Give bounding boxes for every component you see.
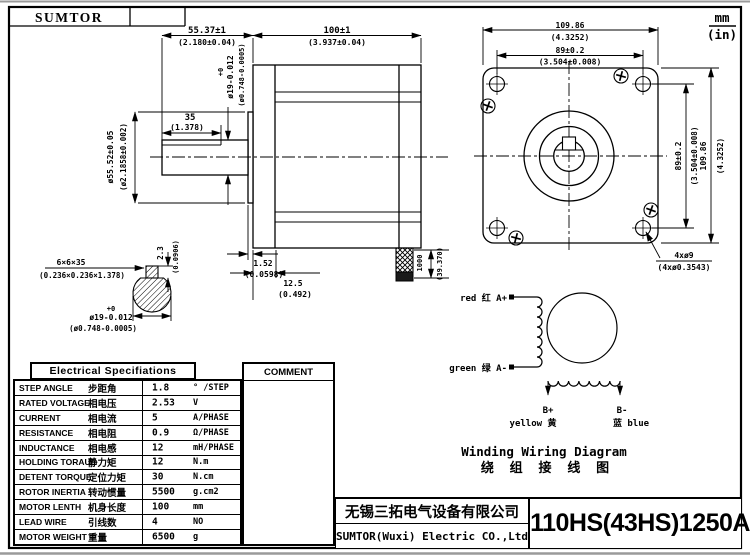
dim-mounting-holes-mm: 4xø9: [674, 251, 693, 260]
spec-unit: ° /STEP: [193, 383, 229, 393]
spec-value: 2.53: [152, 397, 175, 408]
winding-wiring-diagram: [509, 293, 620, 395]
brand-logo: SUMTOR: [35, 10, 103, 25]
dim-boss-height-mm: 1.52: [253, 259, 272, 268]
lead-b-plus-color: yellow 黄: [510, 417, 557, 429]
spec-value: 0.9: [152, 427, 169, 438]
spec-name-en: RATED VOLTAGE: [19, 398, 90, 408]
cable-end: [396, 272, 413, 281]
dim-body-length-mm: 100±1: [323, 26, 350, 36]
spec-unit: mm: [193, 502, 203, 512]
key-section: [146, 266, 158, 278]
spec-name-en: DETENT TORQUE: [19, 472, 92, 482]
spec-name-cn: 相电压: [88, 396, 117, 410]
dim-flange-width-in: (4.3252): [551, 33, 590, 42]
table-row: STEP ANGLE步距角1.8° /STEP: [15, 381, 240, 396]
dim-detail-tol-plus: +0: [107, 305, 115, 313]
spec-value: 5: [152, 412, 158, 423]
lead-cable: [396, 248, 413, 272]
company-name-en: SUMTOR(Wuxi) Electric CO.,Ltd: [336, 524, 528, 548]
spec-unit: g.cm2: [193, 487, 219, 497]
dim-shaft-to-face-in: (2.180±0.04): [178, 38, 236, 47]
lead-a-plus-label: red 红 A+: [460, 292, 508, 304]
spec-value: 4: [152, 517, 158, 528]
spec-name-cn: 静力矩: [88, 455, 117, 469]
dim-boss-dia-in: (ø2.1858±0.002): [119, 123, 128, 191]
shaft-section: [133, 278, 171, 312]
front-boss: [248, 112, 253, 203]
dim-key-mm: 6×6×35: [57, 258, 86, 267]
units-in-label: (in): [707, 27, 737, 42]
spec-name-en: CURRENT: [19, 413, 61, 423]
spec-name-cn: 机身长度: [88, 500, 126, 514]
table-row: ROTOR INERTIA转动惯量5500g.cm2: [15, 485, 240, 500]
spec-name-en: ROTOR INERTIA: [19, 487, 86, 497]
spec-name-en: INDUCTANCE: [19, 443, 75, 453]
table-row: RESISTANCE相电阻0.9Ω/PHASE: [15, 426, 240, 441]
spec-value: 5500: [152, 487, 175, 498]
terminal-dot: [509, 365, 514, 370]
dim-mounting-holes-in: (4xø0.3543): [658, 263, 711, 272]
dim-hole-span-h-mm: 89±0.2: [556, 46, 585, 55]
spec-name-cn: 定位力矩: [88, 470, 126, 484]
table-row: LEAD WIRE引线数4NO: [15, 515, 240, 530]
spec-name-en: HOLDING TORAUE: [19, 457, 96, 467]
phase-a-coil: [537, 297, 542, 367]
dim-shaft-to-face-mm: 55.37±1: [188, 26, 226, 36]
spec-value: 6500: [152, 532, 175, 543]
spec-name-cn: 重量: [88, 530, 107, 544]
lead-b-plus-label: B+: [543, 406, 554, 416]
spec-name-cn: 步距角: [88, 381, 117, 395]
dim-key-in: (0.236×0.236×1.378): [39, 271, 125, 280]
table-row: RATED VOLTAGE相电压2.53V: [15, 396, 240, 411]
spec-value: 12: [152, 457, 163, 468]
dim-front-step-mm: 12.5: [283, 279, 302, 288]
dim-shaft-dia-mm: ø19-0.012: [226, 55, 235, 99]
spec-unit: g: [193, 532, 198, 542]
spec-name-cn: 相电感: [88, 441, 117, 455]
dim-detail-dia-mm: ø19-0.012: [89, 313, 133, 322]
dim-key-height-mm: 2.3: [156, 246, 165, 260]
spec-name-en: RESISTANCE: [19, 428, 73, 438]
phase-b-coil: [548, 381, 620, 386]
dim-hole-span-h-in: (3.504±0.008): [539, 58, 602, 67]
units-mm-label: mm: [714, 10, 730, 25]
spec-value: 100: [152, 502, 169, 513]
spec-value: 1.8: [152, 382, 169, 393]
dim-hole-span-v-in: (3.504±0.008): [690, 127, 699, 186]
dim-flange-width-mm: 109.86: [556, 21, 585, 30]
spec-table: STEP ANGLE步距角1.8° /STEP RATED VOLTAGE相电压…: [13, 379, 242, 546]
spec-name-en: MOTOR WEIGHT: [19, 532, 87, 542]
dim-flange-height-in: (4.3252): [716, 138, 725, 174]
comment-header: COMMENT: [244, 364, 333, 381]
motor-side-view: [150, 65, 448, 281]
drawing-sheet: SUMTOR mm (in): [0, 0, 750, 556]
title-block: 无锡三拓电气设备有限公司 SUMTOR(Wuxi) Electric CO.,L…: [335, 497, 741, 548]
lead-b-minus-label: B-: [617, 406, 628, 416]
dim-cable-length-in: (39.370): [436, 247, 444, 281]
spec-unit: N.m: [193, 457, 208, 467]
keyway: [563, 137, 576, 150]
table-row: HOLDING TORAUE静力矩12N.m: [15, 456, 240, 471]
dim-boss-height-in: (0.0598): [245, 270, 284, 279]
table-row: CURRENT相电流5A/PHASE: [15, 411, 240, 426]
dim-shaft-dia-in: (ø0.748-0.0005): [238, 43, 246, 106]
dim-key-height-in: (0.0906): [172, 240, 180, 274]
lead-b-minus-color: 蓝 blue: [613, 417, 650, 429]
spec-unit: N.cm: [193, 472, 213, 482]
table-row: DETENT TORQUE定位力矩30N.cm: [15, 470, 240, 485]
rotor-circle: [547, 293, 617, 363]
dim-flange-height-mm: 109.86: [699, 141, 708, 170]
terminal-dot: [509, 295, 514, 300]
spec-name-en: LEAD WIRE: [19, 517, 67, 527]
wiring-title-cn: 绕 组 接 线 图: [481, 460, 613, 476]
wiring-title-en: Winding Wiring Diagram: [461, 444, 627, 459]
dim-front-step-in: (0.492): [278, 290, 312, 299]
motor-front-view: [474, 61, 667, 250]
spec-name-cn: 转动惯量: [88, 485, 126, 499]
dim-body-length-in: (3.937±0.04): [308, 38, 366, 47]
spec-unit: NO: [193, 517, 203, 527]
dim-shaft-tol-plus: +0: [217, 68, 225, 76]
dim-flat-length-in: (1.378): [170, 123, 204, 132]
table-row: MOTOR LENTH机身长度100mm: [15, 500, 240, 515]
model-number: 110HS(43HS)1250A4: [530, 499, 750, 548]
company-cell: 无锡三拓电气设备有限公司 SUMTOR(Wuxi) Electric CO.,L…: [336, 499, 530, 548]
spec-value: 30: [152, 472, 163, 483]
spec-name-en: STEP ANGLE: [19, 383, 73, 393]
spec-unit: A/PHASE: [193, 413, 229, 423]
spec-name-cn: 引线数: [88, 515, 117, 529]
dim-hole-span-v-mm: 89±0.2: [674, 141, 683, 170]
spec-value: 12: [152, 442, 163, 453]
comment-box: COMMENT: [242, 362, 335, 546]
dim-flat-length-mm: 35: [185, 113, 196, 123]
spec-unit: Ω/PHASE: [193, 428, 229, 438]
spec-table-title: Electrical Specifiations: [30, 362, 196, 380]
company-name-cn: 无锡三拓电气设备有限公司: [336, 499, 528, 524]
spec-name-cn: 相电流: [88, 411, 117, 425]
spec-unit: mH/PHASE: [193, 443, 234, 453]
spec-name-en: MOTOR LENTH: [19, 502, 81, 512]
spec-unit: V: [193, 398, 198, 408]
lead-a-minus-label: green 绿 A-: [449, 362, 507, 374]
dim-detail-dia-in: (ø0.748-0.0005): [69, 324, 137, 333]
table-row: MOTOR WEIGHT重量6500g: [15, 530, 240, 544]
dim-cable-length-mm: 1000: [416, 255, 424, 272]
table-row: INDUCTANCE相电感12mH/PHASE: [15, 441, 240, 456]
dim-boss-dia-mm: ø55.52±0.05: [106, 130, 115, 183]
front-flange: [483, 68, 658, 243]
spec-name-cn: 相电阻: [88, 426, 117, 440]
